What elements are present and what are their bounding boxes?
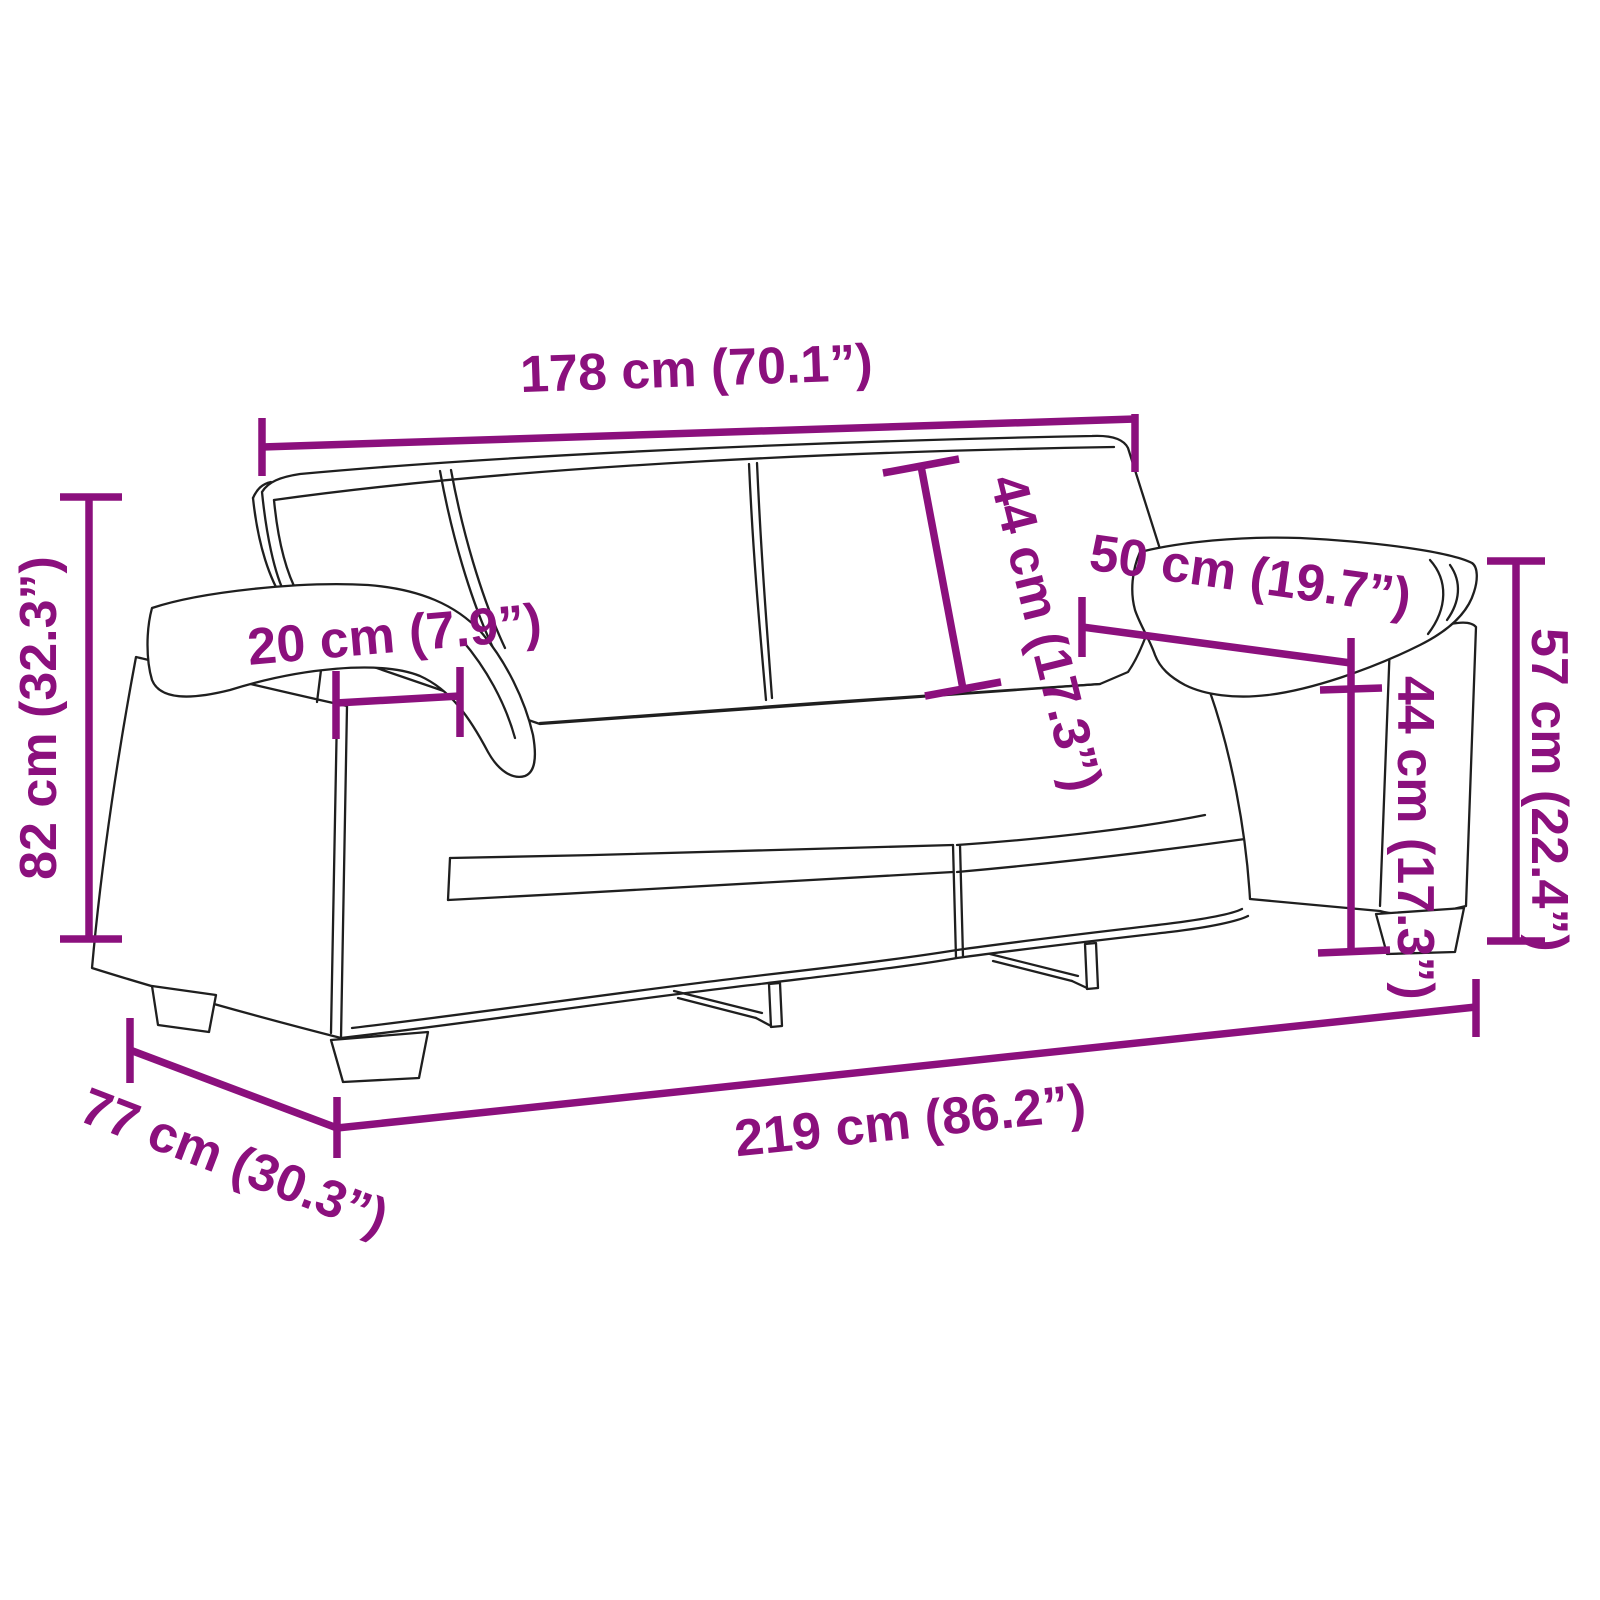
dim-tick bbox=[1318, 950, 1390, 953]
dim-label: 219 cm (86.2”) bbox=[732, 1074, 1089, 1169]
dim-label: 82 cm (32.3”) bbox=[10, 556, 68, 880]
dim-label: 44 cm (17.3”) bbox=[1386, 676, 1444, 1000]
diagram-canvas: 178 cm (70.1”) 44 cm (17.3”) 50 cm (19.7… bbox=[0, 0, 1600, 1600]
dimension-armrest-height: 57 cm (22.4”) bbox=[1487, 561, 1578, 952]
dim-line bbox=[336, 696, 460, 703]
dim-tick bbox=[1320, 688, 1382, 690]
mid-left-leg bbox=[331, 1032, 428, 1082]
dim-label: 77 cm (30.3”) bbox=[73, 1077, 396, 1247]
sofa-drawing bbox=[92, 436, 1477, 1082]
left-arm-panel bbox=[92, 657, 347, 1038]
front-left-leg bbox=[152, 986, 216, 1032]
dim-label: 57 cm (22.4”) bbox=[1520, 628, 1578, 952]
sofa-dimension-diagram: 178 cm (70.1”) 44 cm (17.3”) 50 cm (19.7… bbox=[0, 0, 1600, 1600]
dim-label: 178 cm (70.1”) bbox=[519, 334, 873, 404]
